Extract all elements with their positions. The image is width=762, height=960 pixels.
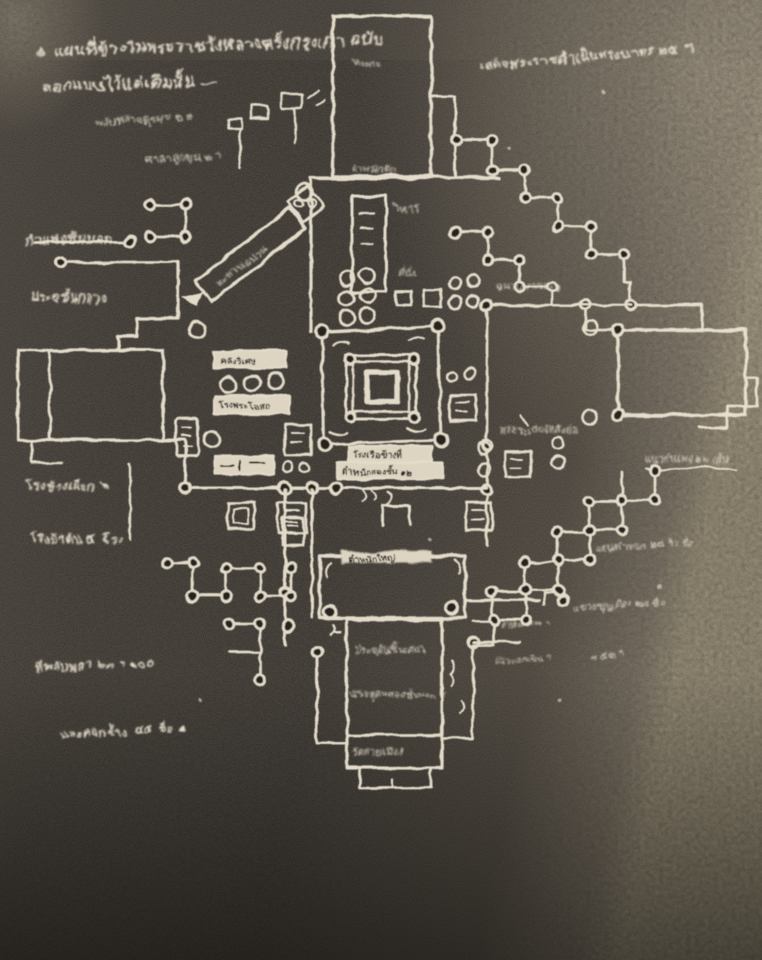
- photographed-plan-page: ๏ แผนที่ข้างในพระราชวังหลวงครั้งกรุงเก่า…: [0, 0, 762, 960]
- label-horse-house: โรงม้าต้น ๔ โรง: [29, 531, 122, 546]
- label-annex-3: วัดท้ายเมือง: [352, 746, 403, 758]
- label-treasury: คลังวิเศษ: [220, 356, 256, 367]
- label-top-hall: หอพระ: [352, 58, 382, 69]
- label-annex-2: ประตูดินสองชั้นนอก ฯ: [351, 687, 446, 701]
- label-outer-wall-right: แนวกำแพง ๒๖ เส้น: [645, 453, 729, 465]
- label-annex-1: ประตูดินชั้นเดียว: [354, 642, 426, 656]
- label-elephant-house: โรงช้างเผือก ๒: [25, 478, 109, 493]
- label-main-hall: ตำหนักใหญ่: [348, 553, 395, 565]
- label-chanuan: ฉนวนทางเสด็จ: [496, 279, 561, 293]
- caption-bullet: ๏: [36, 44, 45, 60]
- label-vihara: วิหาร: [393, 202, 419, 215]
- label-dispensary: โรงพระโอสถ: [218, 400, 270, 412]
- palace-plan-drawing: ๏ แผนที่ข้างในพระราชวังหลวงครั้งกรุงเก่า…: [0, 0, 762, 960]
- label-seat: ที่นั่ง: [398, 265, 416, 279]
- label-gallery: พระระเบียงหลังย่อ: [500, 424, 578, 436]
- label-top-wall: ตำหนักตึก: [352, 164, 396, 176]
